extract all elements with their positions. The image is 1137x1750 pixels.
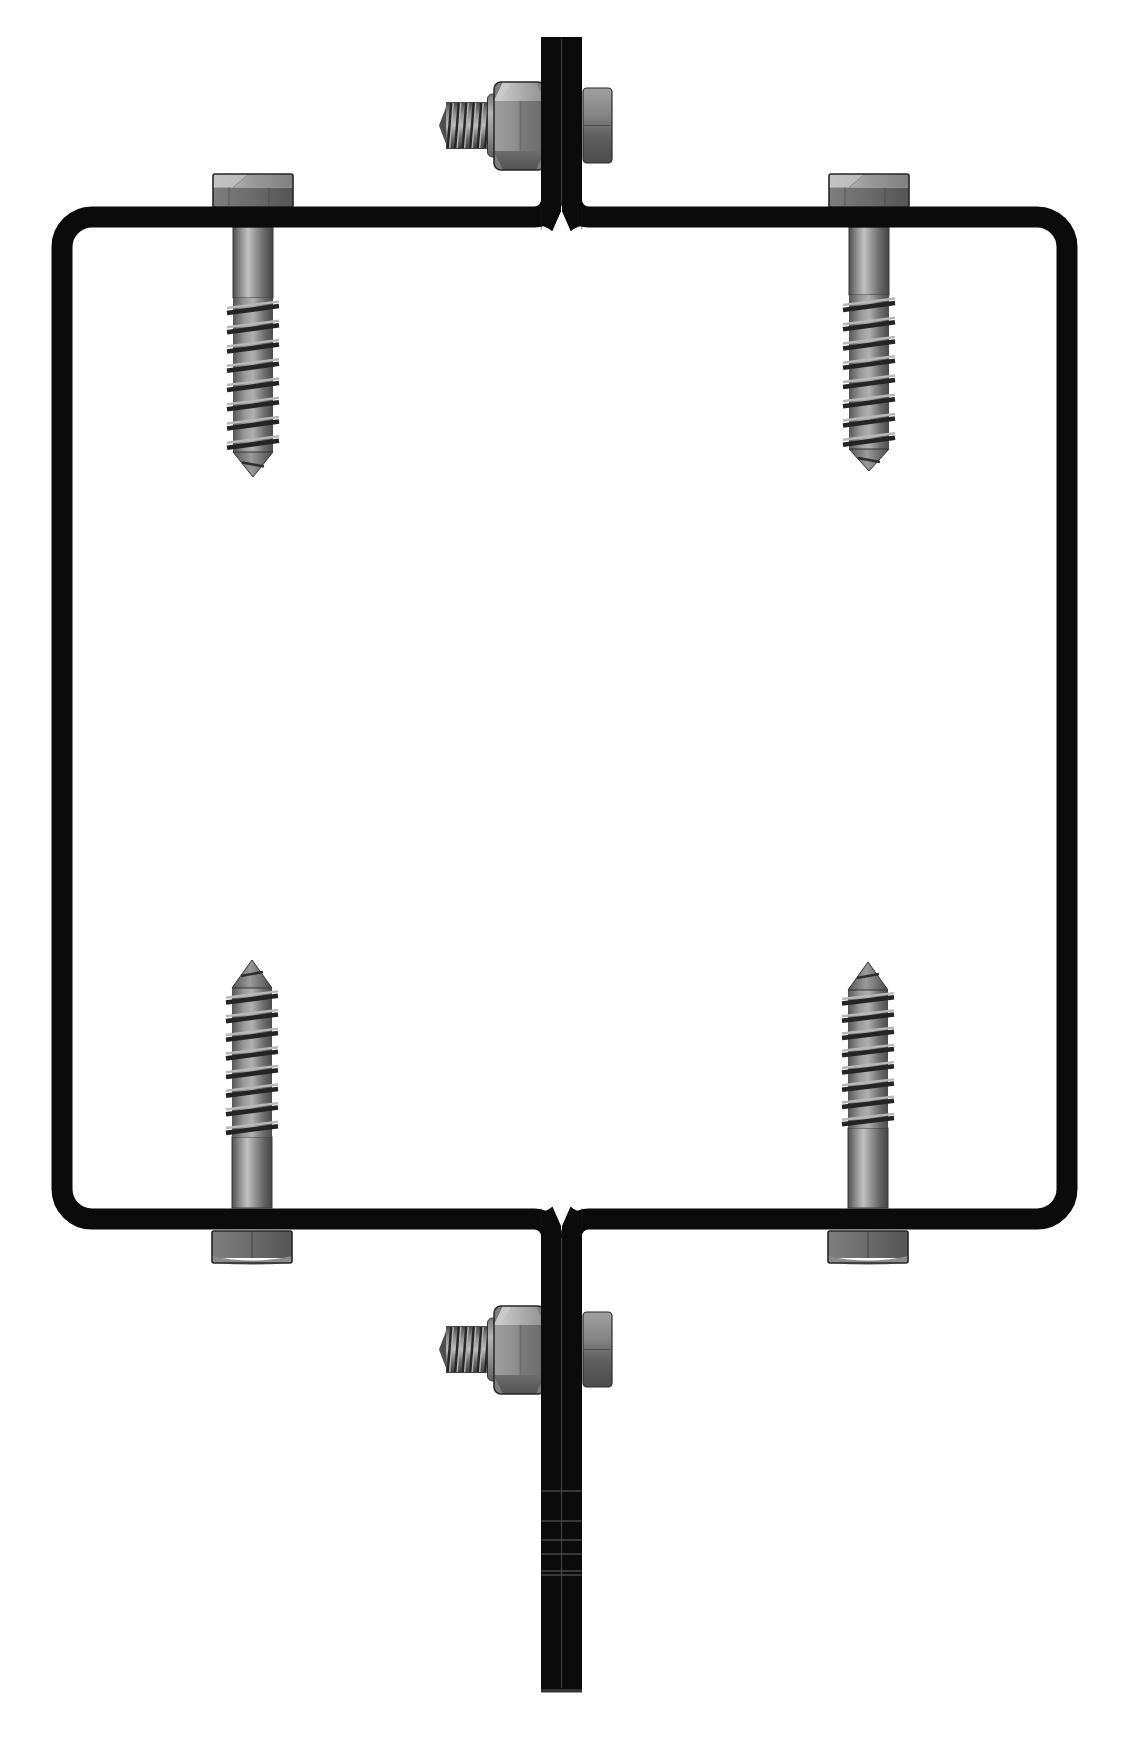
lag-screw-tip — [232, 960, 272, 988]
lag-screw-shank — [233, 227, 273, 298]
bolt-clamp-nut — [494, 82, 545, 170]
lag-screw-threads — [842, 990, 894, 1128]
lag-screw-threads — [843, 295, 895, 449]
frame-right-half — [572, 37, 1068, 1692]
mounting-frame — [62, 37, 1067, 1692]
lag-screw-shank — [848, 1128, 888, 1208]
lag-screw-hex-head — [829, 174, 909, 208]
lag-screw-hex-head — [212, 1231, 292, 1265]
lag-screw-tip — [848, 962, 888, 990]
lag-screw-tip — [233, 452, 273, 477]
frame-left-half — [62, 37, 552, 1692]
bracket-assembly-drawing — [0, 0, 1137, 1750]
lag-screw-threads — [226, 988, 278, 1137]
lag-screw-shank — [849, 227, 889, 295]
clamp-bolt-top — [439, 82, 545, 170]
assembly-diagram — [0, 0, 1137, 1750]
lag-screw-tip — [849, 449, 889, 471]
bolt-threaded-stud — [439, 102, 491, 149]
lag-screw-hex-head — [828, 1231, 908, 1265]
lag-screw-shank — [232, 1137, 272, 1208]
lag-screw-hex-head — [213, 174, 293, 208]
bolt-threaded-stud — [439, 1326, 491, 1373]
clamp-bolt-bottom-hex-head — [583, 1312, 612, 1387]
clamp-bolt-top-hex-head — [583, 88, 612, 163]
bolt-clamp-nut — [494, 1306, 545, 1394]
lag-screw-threads — [227, 298, 279, 452]
clamp-bolt-bottom — [439, 1306, 545, 1394]
